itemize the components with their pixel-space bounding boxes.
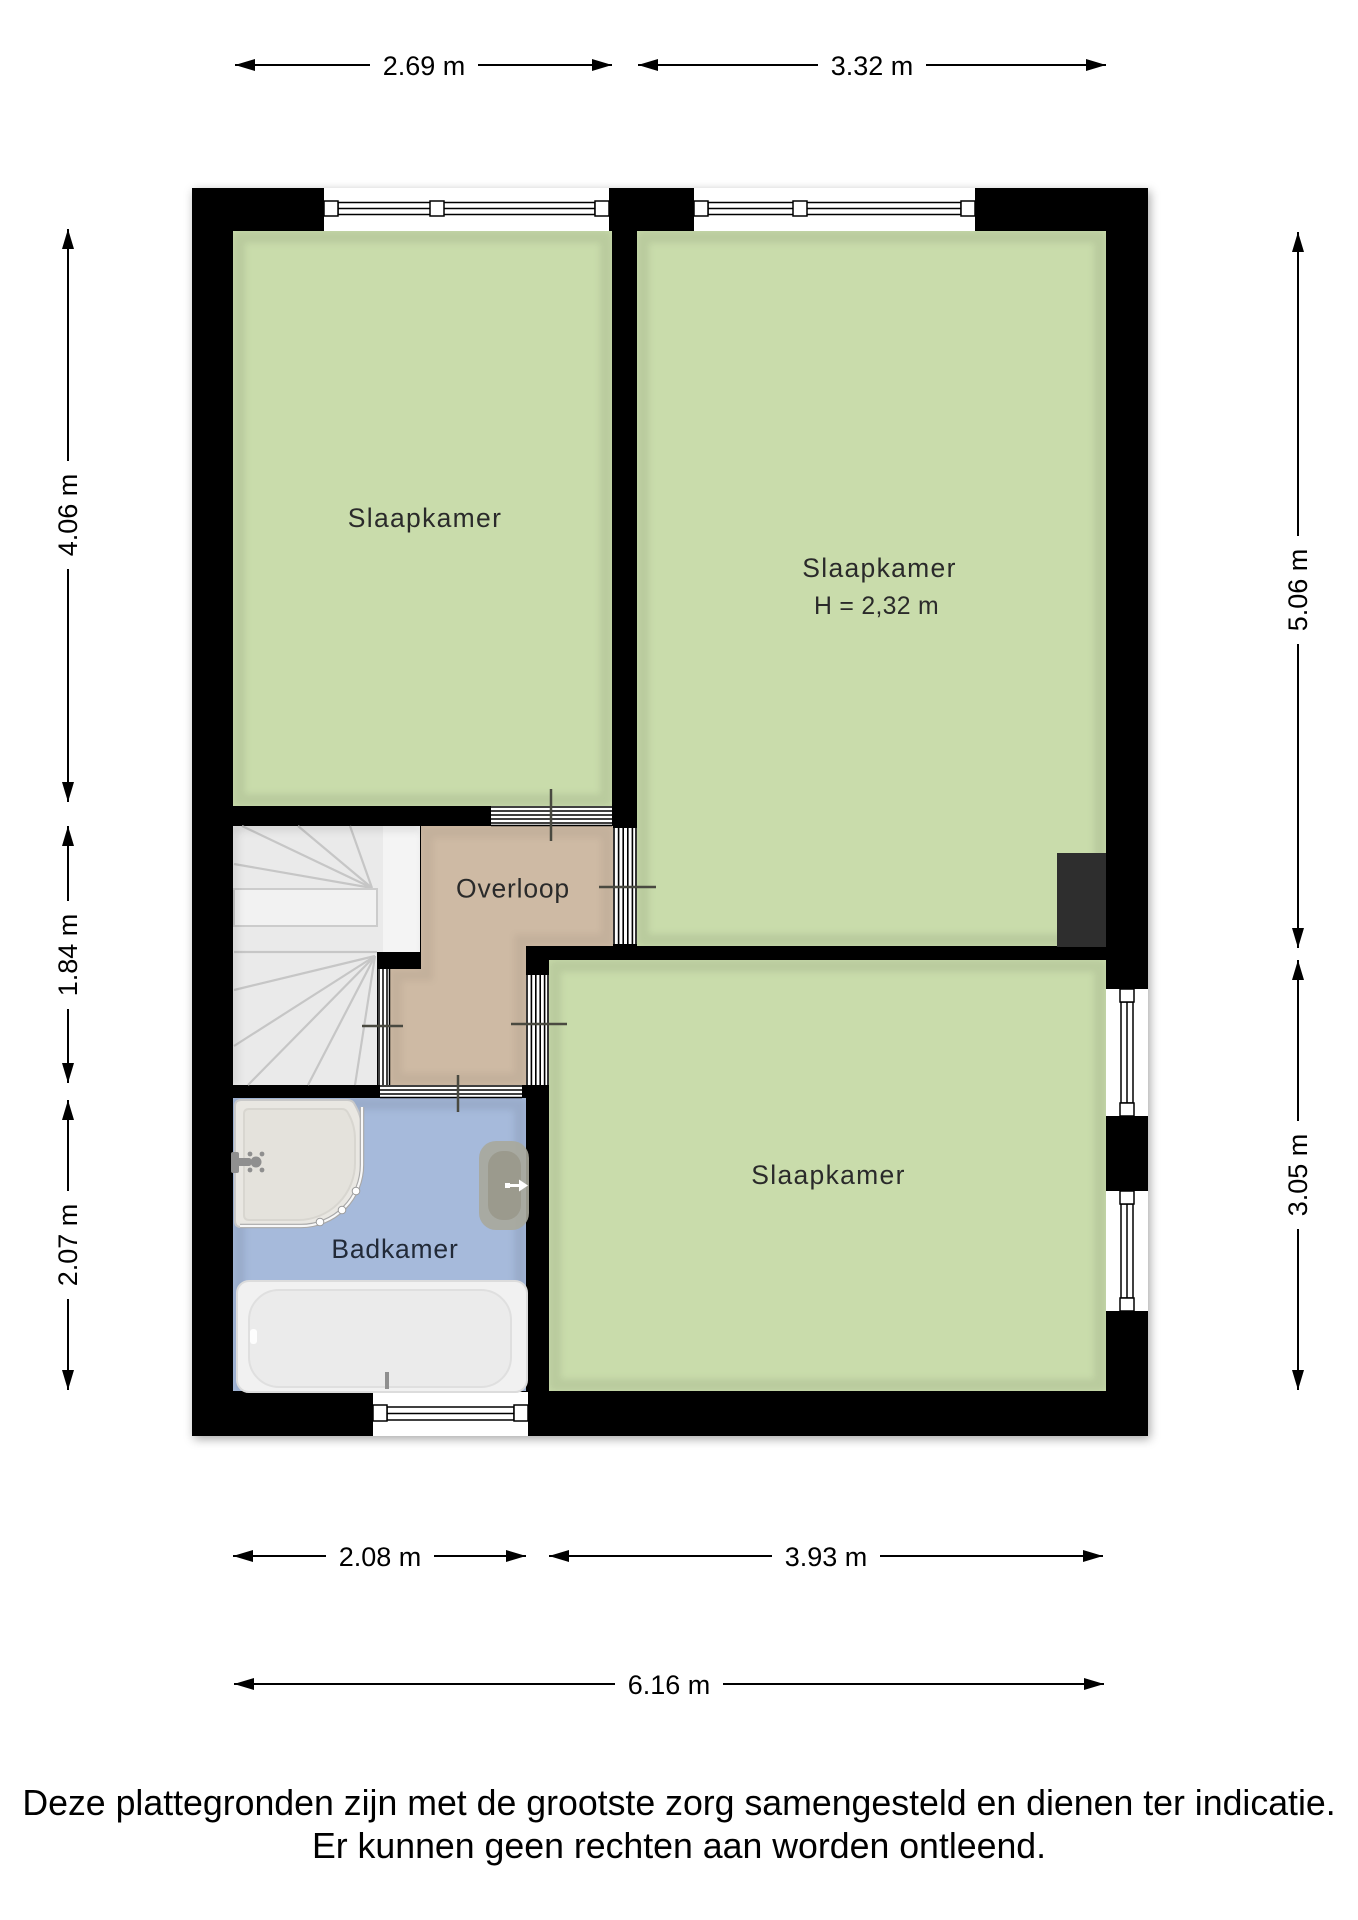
svg-text:Overloop: Overloop bbox=[456, 874, 570, 904]
svg-text:3.32 m: 3.32 m bbox=[831, 51, 914, 81]
svg-text:1.84 m: 1.84 m bbox=[53, 914, 83, 997]
svg-text:4.06 m: 4.06 m bbox=[53, 474, 83, 557]
svg-text:Deze plattegronden zijn met de: Deze plattegronden zijn met de grootste … bbox=[22, 1783, 1335, 1823]
svg-text:5.06 m: 5.06 m bbox=[1283, 549, 1313, 632]
svg-text:Slaapkamer: Slaapkamer bbox=[802, 553, 956, 583]
svg-text:H = 2,32 m: H = 2,32 m bbox=[814, 593, 939, 620]
svg-text:3.05 m: 3.05 m bbox=[1283, 1134, 1313, 1217]
svg-text:Slaapkamer: Slaapkamer bbox=[751, 1160, 905, 1190]
svg-text:2.69 m: 2.69 m bbox=[383, 51, 466, 81]
svg-text:2.08 m: 2.08 m bbox=[339, 1542, 422, 1572]
svg-text:2.07 m: 2.07 m bbox=[53, 1204, 83, 1287]
svg-text:Slaapkamer: Slaapkamer bbox=[348, 503, 502, 533]
svg-text:3.93 m: 3.93 m bbox=[785, 1542, 868, 1572]
svg-text:Er kunnen geen rechten aan wor: Er kunnen geen rechten aan worden ontlee… bbox=[312, 1826, 1046, 1866]
svg-text:Badkamer: Badkamer bbox=[331, 1234, 458, 1264]
svg-text:6.16 m: 6.16 m bbox=[628, 1670, 711, 1700]
